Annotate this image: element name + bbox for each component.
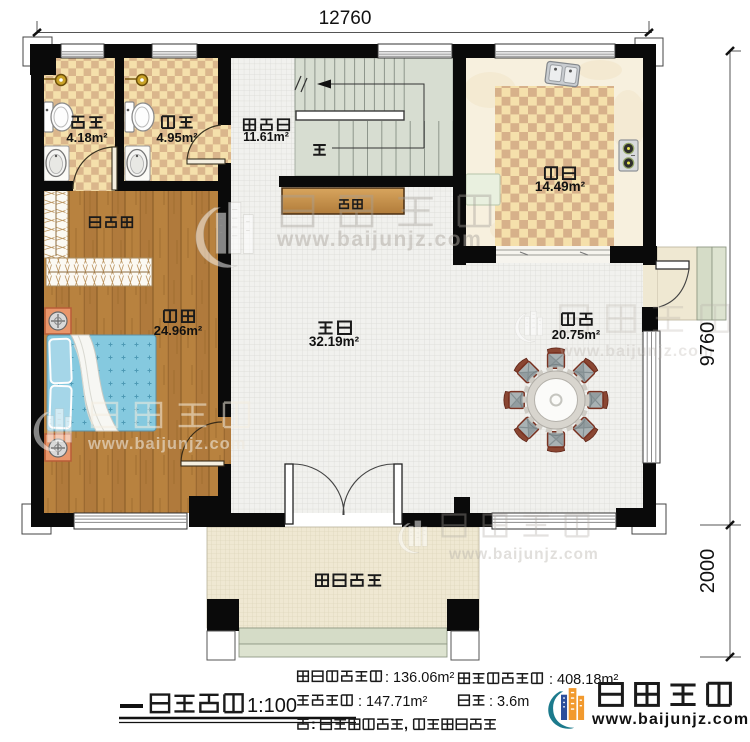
svg-text:20.75m²: 20.75m² xyxy=(552,327,601,342)
svg-text:: 136.06m²: : 136.06m² xyxy=(385,670,454,686)
svg-text:www.baijunjz.com: www.baijunjz.com xyxy=(87,435,246,453)
svg-text:: 408.18m²: : 408.18m² xyxy=(549,672,618,688)
svg-text:32.19m²: 32.19m² xyxy=(309,334,360,349)
svg-text:,: , xyxy=(404,717,408,733)
svg-text:24.96m²: 24.96m² xyxy=(154,323,203,338)
svg-text:: 3.6m: : 3.6m xyxy=(489,694,529,710)
svg-text:4.18m²: 4.18m² xyxy=(66,130,108,145)
svg-text:www.baijunjz.com: www.baijunjz.com xyxy=(276,228,482,251)
svg-text:9760: 9760 xyxy=(697,322,719,367)
svg-text:14.49m²: 14.49m² xyxy=(535,179,586,194)
svg-text:www.baijunjz.com: www.baijunjz.com xyxy=(448,546,599,563)
svg-text:: 147.71m²: : 147.71m² xyxy=(358,694,427,710)
svg-text:1:100: 1:100 xyxy=(247,695,297,717)
svg-text:2000: 2000 xyxy=(697,549,719,594)
svg-text:11.61m²: 11.61m² xyxy=(243,130,289,144)
svg-text::: : xyxy=(311,717,316,733)
svg-text:www.baijunjz.com: www.baijunjz.com xyxy=(559,343,714,360)
svg-text:4.95m²: 4.95m² xyxy=(156,130,198,145)
svg-text:www.baijunjz.com: www.baijunjz.com xyxy=(591,711,749,728)
svg-text:12760: 12760 xyxy=(319,8,372,29)
